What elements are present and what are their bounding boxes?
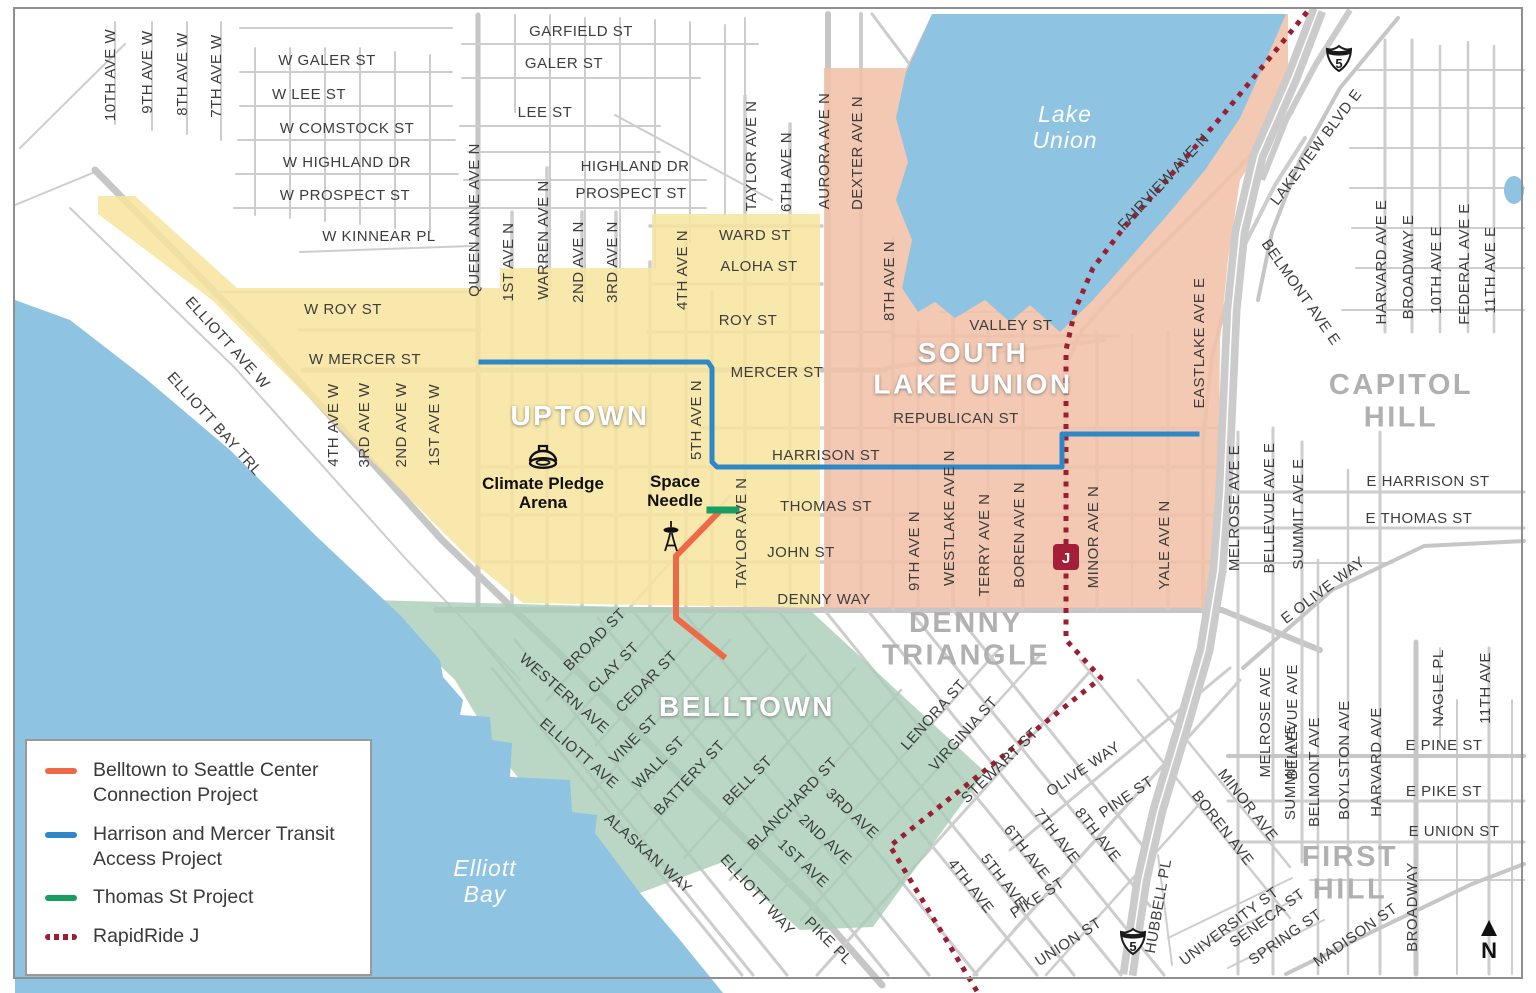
- street-label: VALLEY ST: [969, 317, 1052, 334]
- street-label: W HIGHLAND DR: [283, 154, 411, 171]
- street-label: BOREN AVE N: [1011, 482, 1028, 588]
- legend-item-thomas-st: Thomas St Project: [45, 885, 352, 910]
- dashed-line-swatch: [45, 934, 77, 940]
- street-label: 1ST AVE N: [500, 223, 517, 302]
- street-label: E UNION ST: [1409, 823, 1500, 840]
- street-label: 10TH AVE E: [1428, 226, 1445, 314]
- street-label: W PROSPECT ST: [280, 187, 410, 204]
- street-label: BOYLSTON AVE: [1336, 700, 1353, 820]
- legend-label: Belltown to Seattle Center Connection Pr…: [93, 758, 352, 809]
- poi-label: SpaceNeedle: [647, 472, 703, 510]
- street-label: 3RD AVE N: [604, 221, 621, 303]
- street-label: GARFIELD ST: [529, 23, 633, 40]
- street-label: AURORA AVE N: [816, 93, 833, 210]
- street-label: TAYLOR AVE N: [733, 477, 750, 588]
- street-label: WESTLAKE AVE N: [941, 450, 958, 586]
- legend-label: Harrison and Mercer Transit Access Proje…: [93, 822, 352, 873]
- legend-panel: Belltown to Seattle Center Connection Pr…: [25, 739, 372, 976]
- badge-letter: J: [1062, 550, 1070, 567]
- street-label: HARRISON ST: [772, 447, 880, 464]
- street-label: HIGHLAND DR: [581, 158, 690, 175]
- street-label: 1ST AVE W: [426, 384, 443, 467]
- street-label: THOMAS ST: [780, 498, 872, 515]
- neighborhood-label: FIRSTHILL: [1302, 841, 1398, 905]
- street-label: HARVARD AVE: [1368, 707, 1385, 817]
- street-label: 10TH AVE W: [102, 29, 119, 122]
- map-canvas: 10TH AVE W9TH AVE W8TH AVE W7TH AVE WW G…: [0, 0, 1536, 993]
- legend-label: Thomas St Project: [93, 885, 253, 910]
- street-label: BELMONT AVE: [1306, 717, 1323, 827]
- street-label: FEDERAL AVE E: [1456, 203, 1473, 325]
- street-label: W ROY ST: [304, 301, 382, 318]
- street-label: REPUBLICAN ST: [893, 410, 1019, 427]
- street-label: 11TH AVE E: [1482, 227, 1499, 314]
- rapidride-j-badge: J: [1053, 544, 1079, 570]
- legend-item-rapidride-j: RapidRide J: [45, 924, 352, 949]
- blue-line-swatch: [45, 832, 77, 838]
- street-label: WARREN AVE N: [535, 180, 552, 299]
- street-label: WARD ST: [719, 227, 791, 244]
- street-label: BROADWAY E: [1400, 215, 1417, 320]
- street-label: E THOMAS ST: [1366, 510, 1473, 527]
- street-label: W MERCER ST: [309, 351, 421, 368]
- street-label: 6TH AVE N: [778, 132, 795, 212]
- street-label: 4TH AVE N: [674, 230, 691, 310]
- street-label: SUMMIT AVE: [1282, 724, 1299, 820]
- street-label: MINOR AVE N: [1085, 486, 1102, 589]
- street-label: E HARRISON ST: [1366, 473, 1489, 490]
- street-label: W COMSTOCK ST: [280, 120, 415, 137]
- street-label: BROADWAY: [1404, 862, 1421, 952]
- street-label: YALE AVE N: [1156, 500, 1173, 590]
- street-label: 8TH AVE W: [174, 32, 191, 116]
- street-label: ROY ST: [719, 312, 778, 329]
- legend-label: RapidRide J: [93, 924, 199, 949]
- street-label: PROSPECT ST: [575, 185, 686, 202]
- legend-item-harrison-mercer: Harrison and Mercer Transit Access Proje…: [45, 822, 352, 873]
- street-label: NAGLE PL: [1430, 649, 1447, 726]
- street-label: JOHN ST: [767, 544, 835, 561]
- street-label: TERRY AVE N: [976, 493, 993, 596]
- north-letter: N: [1481, 938, 1497, 963]
- street-label: W GALER ST: [278, 52, 376, 69]
- street-label: HARVARD AVE E: [1373, 200, 1390, 325]
- street-label: 7TH AVE W: [208, 34, 225, 118]
- street-label: DENNY WAY: [777, 591, 870, 608]
- street-label: E PINE ST: [1405, 737, 1482, 754]
- street-label: DEXTER AVE N: [849, 96, 866, 210]
- legend-item-belltown-connection: Belltown to Seattle Center Connection Pr…: [45, 758, 352, 809]
- street-label: E PIKE ST: [1406, 783, 1482, 800]
- street-label: MELROSE AVE E: [1226, 445, 1243, 571]
- street-label: BELLEVUE AVE E: [1261, 443, 1278, 574]
- green-line-swatch: [45, 895, 77, 901]
- water-label: LakeUnion: [1032, 101, 1097, 153]
- shield-number: 5: [1335, 56, 1342, 71]
- street-label: W LEE ST: [272, 86, 346, 103]
- street-label: 2ND AVE W: [393, 382, 410, 467]
- street-label: MERCER ST: [731, 364, 824, 381]
- street-label: 8TH AVE N: [881, 241, 898, 321]
- street-label: 5TH AVE N: [688, 380, 705, 460]
- street-label: 11TH AVE: [1477, 652, 1494, 724]
- street-label: QUEEN ANNE AVE N: [466, 143, 483, 297]
- street-label: 9TH AVE W: [139, 30, 156, 114]
- street-label: ALOHA ST: [720, 258, 797, 275]
- street-label: W KINNEAR PL: [322, 228, 436, 245]
- street-label: 3RD AVE W: [356, 382, 373, 467]
- orange-line-swatch: [45, 768, 77, 774]
- neighborhood-label: BELLTOWN: [659, 691, 835, 722]
- shield-number: 5: [1129, 939, 1136, 954]
- street-label: LEE ST: [518, 104, 573, 121]
- street-label: 4TH AVE W: [325, 383, 342, 467]
- street-label: TAYLOR AVE N: [743, 100, 760, 211]
- neighborhood-label: UPTOWN: [511, 400, 650, 431]
- street-label: 9TH AVE N: [906, 511, 923, 591]
- street-label: SUMMIT AVE E: [1290, 458, 1307, 569]
- street-label: MELROSE AVE: [1257, 666, 1274, 777]
- street-label: 2ND AVE N: [570, 221, 587, 303]
- street-label: EASTLAKE AVE E: [1191, 278, 1208, 409]
- street-label: GALER ST: [525, 55, 603, 72]
